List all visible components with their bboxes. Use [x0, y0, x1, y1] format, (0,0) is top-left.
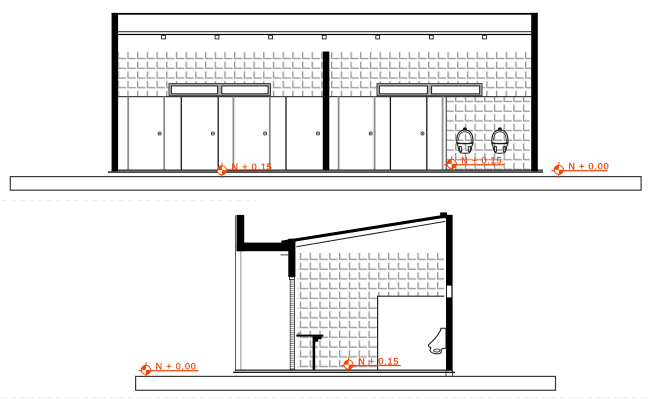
svg-text:N + 0.00: N + 0.00 [156, 362, 197, 372]
svg-text:N + 0.15: N + 0.15 [232, 162, 273, 172]
svg-text:N + 0.00: N + 0.00 [568, 162, 609, 172]
svg-text:N + 0.15: N + 0.15 [461, 156, 502, 166]
svg-text:N + 0.15: N + 0.15 [358, 356, 399, 366]
